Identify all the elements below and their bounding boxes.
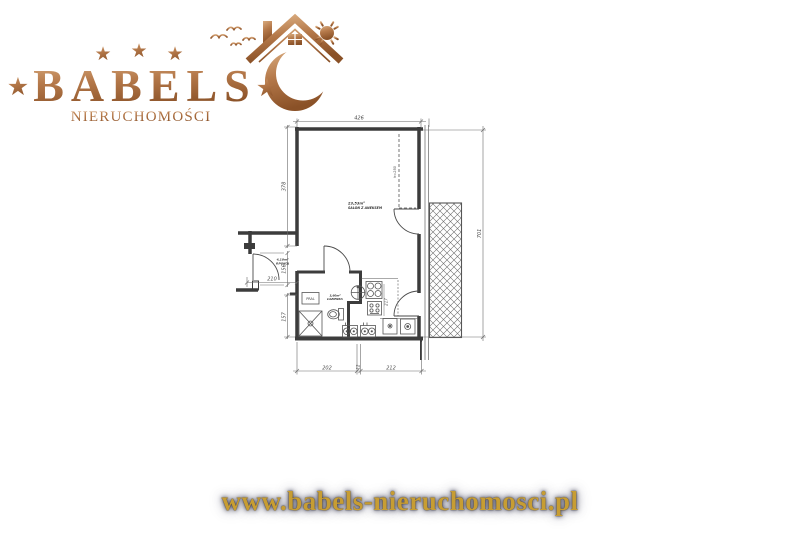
brand-name: BABELS xyxy=(33,60,257,111)
dim-bottom-right-label: 212 xyxy=(386,366,396,372)
hallway-name-label: P.POKÓJ xyxy=(276,261,290,266)
dim-left-bath-label: 157 xyxy=(282,311,288,321)
website-watermark: www.babels-nieruchomosci.pl xyxy=(0,486,800,517)
dim-left-entry-label: 156 xyxy=(282,264,288,274)
toilet-fixture xyxy=(328,309,344,321)
salon-area-label: 23,53m² xyxy=(348,202,365,206)
stove-fixture xyxy=(366,282,382,299)
walls xyxy=(236,127,423,360)
star-icon: ★ xyxy=(7,73,29,101)
basin-fixture xyxy=(383,319,397,335)
fixtures xyxy=(299,282,415,338)
dim-entry-width-label: 210 xyxy=(267,277,277,283)
roof-window-icon xyxy=(288,34,302,45)
real-estate-listing-image: ★ ★ ★ ★ ★ BABELS NIERUCHOMOŚCI xyxy=(0,0,800,535)
shower-fixture xyxy=(299,311,322,336)
dim-top-label: 426 xyxy=(354,116,364,122)
balcony-hatch xyxy=(430,203,462,338)
bathroom-door-arc xyxy=(324,246,350,272)
salon-name-label: SALON Z ANEKSEM xyxy=(348,206,383,210)
oven-fixture xyxy=(368,302,382,316)
wardrobe-dashed-line xyxy=(399,134,416,208)
hob-fixture xyxy=(361,323,376,338)
exterior-wall-lines xyxy=(425,125,429,360)
balcony-door-upper-arc xyxy=(394,209,419,234)
floor-plan: 426 378 156 210 157 701 202 12 212 217 h… xyxy=(230,92,520,402)
dim-kitchen-label: 217 xyxy=(384,298,389,306)
bathroom-name-label: ŁAZIENKA xyxy=(326,297,343,301)
dim-bottom-mid-label: 12 xyxy=(356,364,361,370)
dim-left-salon-label: 378 xyxy=(282,182,288,192)
height-note-label: h=250 xyxy=(393,165,397,178)
washer-label: PRAL xyxy=(306,297,315,301)
kitchen-sink-fixture xyxy=(351,286,365,300)
star-icon: ★ xyxy=(130,41,147,62)
birds-icon xyxy=(211,27,255,45)
brand-subtitle: NIERUCHOMOŚCI xyxy=(71,108,212,125)
dim-bottom-left-label: 202 xyxy=(322,366,332,372)
counter-unit-fixture xyxy=(401,319,416,334)
dim-right-total-label: 701 xyxy=(477,229,483,239)
